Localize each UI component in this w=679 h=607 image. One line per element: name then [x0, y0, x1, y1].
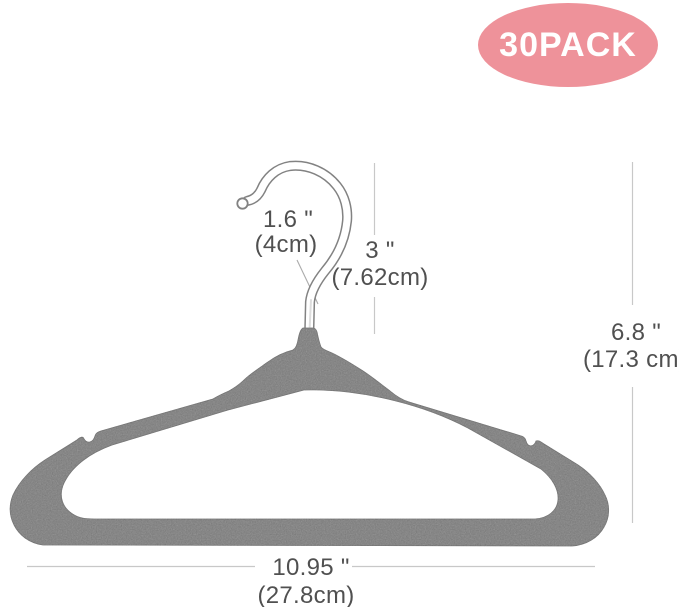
product-image: 1.6 " (4cm) 3 " (7.62cm) 6.8 " (17.3 cm)…: [0, 0, 679, 607]
hook-height-inches-label: 3 ": [365, 238, 394, 264]
hanger-body: [10, 328, 609, 546]
hook-opening-inches-label: 1.6 ": [263, 207, 313, 233]
hanger-illustration: [0, 0, 679, 607]
pack-count-badge: 30PACK: [478, 3, 658, 87]
overall-height-inches-label: 6.8 ": [611, 320, 661, 346]
hook-ball-tip: [237, 198, 247, 208]
hook-height-metric-label: (7.62cm): [331, 265, 428, 291]
overall-width-inches-label: 10.95 ": [272, 555, 349, 581]
hook-opening-metric-label: (4cm): [255, 232, 318, 258]
pack-count-label: 30PACK: [499, 26, 637, 65]
overall-width-metric-label: (27.8cm): [257, 583, 354, 607]
overall-height-metric-label: (17.3 cm): [583, 347, 679, 373]
